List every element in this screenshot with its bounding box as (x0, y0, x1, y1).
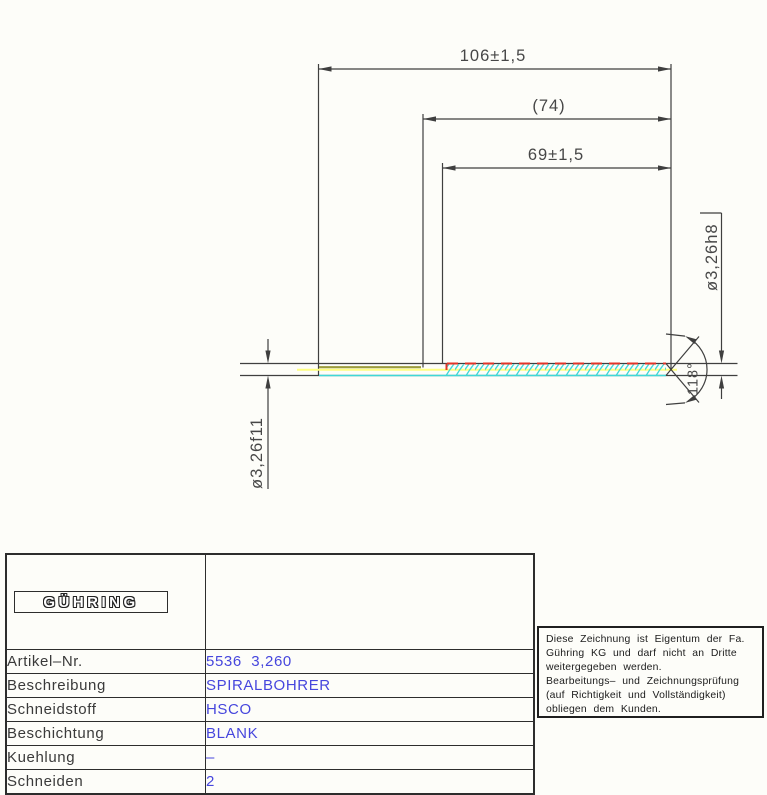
drill-blank (240, 364, 738, 376)
dimension-total-length: 106±1,5 (319, 47, 672, 376)
flute-helix (446, 364, 667, 375)
point-angle-label: 118° (686, 362, 702, 395)
spec-label-beschichtung: Beschichtung (6, 722, 206, 746)
arrowhead-right (658, 165, 671, 170)
guehring-logo: GÜHRING (14, 591, 168, 613)
spec-label-artikel-nr: Artikel–Nr. (6, 650, 206, 674)
arrowhead-right (658, 66, 671, 71)
dim-tip-diameter-label: ø3,26h8 (703, 223, 721, 291)
spec-value-schneiden: 2 (206, 770, 535, 795)
spec-value-kuehlung: – (206, 746, 535, 770)
notice-line: Diese Zeichnung ist Eigentum der Fa. (546, 633, 755, 647)
table-row: Artikel–Nr. 5536 3,260 (6, 650, 534, 674)
spec-value-beschreibung: SPIRALBOHRER (206, 674, 535, 698)
arc-tail-lower (666, 403, 685, 405)
point-cone-upper (666, 364, 671, 370)
notice-line: obliegen dem Kunden. (546, 703, 755, 717)
dimension-tip-diameter: ø3,26h8 (700, 213, 724, 399)
arrowhead-down (265, 351, 270, 364)
spec-label-schneidstoff: Schneidstoff (6, 698, 206, 722)
spec-value-beschichtung: BLANK (206, 722, 535, 746)
spec-label-beschreibung: Beschreibung (6, 674, 206, 698)
notice-line: weitergegeben werden. (546, 661, 755, 675)
notice-line: Gühring KG und darf nicht an Dritte (546, 647, 755, 661)
arrowhead-up (719, 376, 724, 389)
table-row: Kuehlung – (6, 746, 534, 770)
table-row: Beschichtung BLANK (6, 722, 534, 746)
guehring-logo-text: GÜHRING (43, 594, 138, 611)
dim-flute-length-label: 69±1,5 (528, 146, 584, 164)
spec-value-artikel-nr: 5536 3,260 (206, 650, 535, 674)
arrowhead-left (423, 116, 436, 121)
table-row: Schneiden 2 (6, 770, 534, 795)
dim-shank-diameter-label: ø3,26f11 (248, 417, 266, 489)
spec-table: GÜHRING Artikel–Nr. 5536 3,260 Beschreib… (5, 553, 535, 795)
dimension-74: (74) (423, 97, 671, 368)
spec-label-kuehlung: Kuehlung (6, 746, 206, 770)
arrowhead-left (443, 165, 456, 170)
spec-value-schneidstoff: HSCO (206, 698, 535, 722)
arc-tail-upper (666, 334, 685, 336)
notice-line: (auf Richtigkeit und Vollständigkeit) (546, 689, 755, 703)
table-row: Beschreibung SPIRALBOHRER (6, 674, 534, 698)
dim-74-label: (74) (532, 97, 565, 115)
table-row: Schneidstoff HSCO (6, 698, 534, 722)
spec-label-schneiden: Schneiden (6, 770, 206, 795)
notice-line: Bearbeitungs– und Zeichnungsprüfung (546, 675, 755, 689)
dimension-shank-diameter: ø3,26f11 (248, 339, 271, 489)
table-row: GÜHRING (6, 554, 534, 650)
dimension-flute-length: 69±1,5 (443, 146, 672, 364)
arrowhead-up (265, 376, 270, 389)
arrowhead-right (658, 116, 671, 121)
ownership-notice: Diese Zeichnung ist Eigentum der Fa. Güh… (537, 626, 764, 718)
dim-total-length-label: 106±1,5 (460, 47, 527, 65)
arrowhead-down (719, 351, 724, 364)
arrowhead-left (319, 66, 332, 71)
